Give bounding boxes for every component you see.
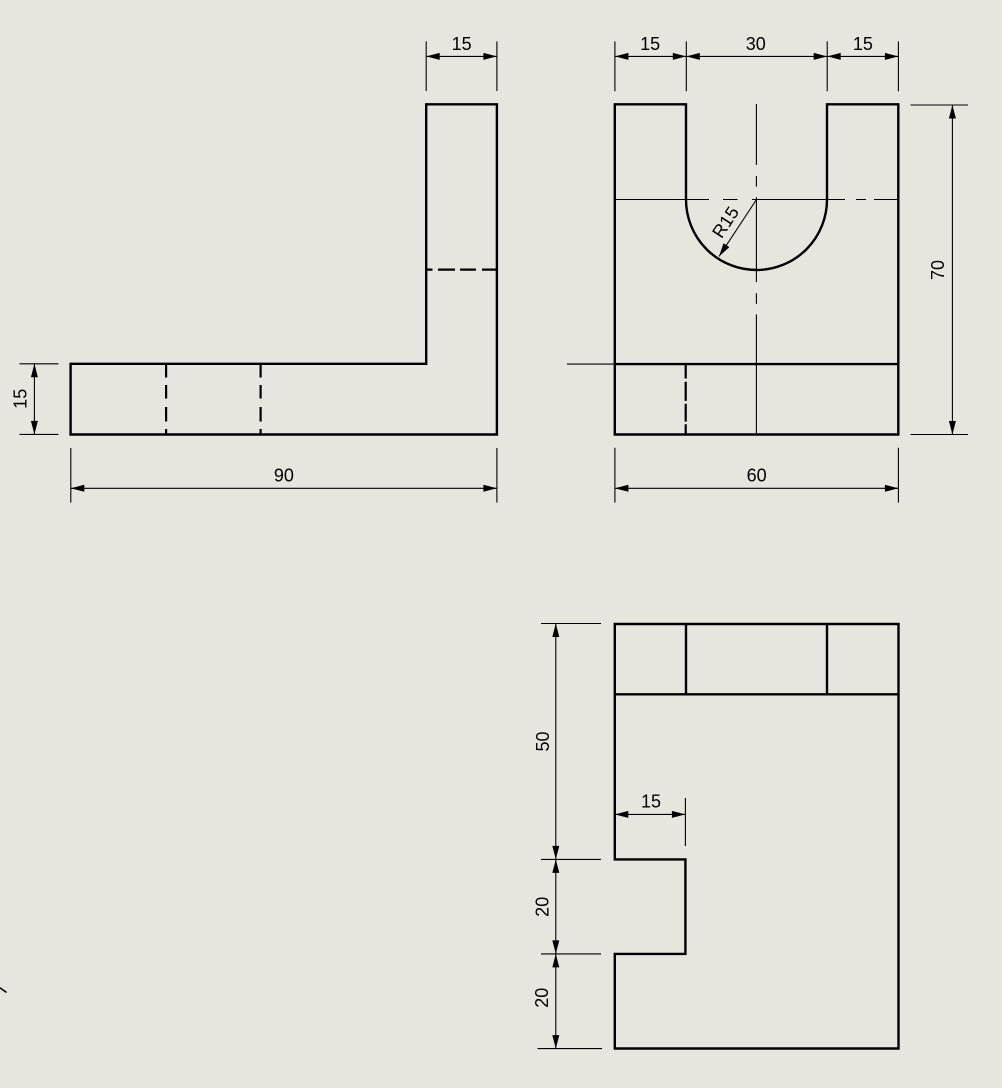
svg-text:60: 60 <box>747 465 767 485</box>
svg-text:15: 15 <box>640 34 660 54</box>
svg-text:20: 20 <box>533 897 553 917</box>
svg-text:15: 15 <box>452 34 472 54</box>
svg-text:15: 15 <box>853 34 873 54</box>
svg-text:15: 15 <box>641 791 661 811</box>
svg-text:15: 15 <box>11 389 31 409</box>
svg-text:90: 90 <box>274 465 294 485</box>
svg-text:20: 20 <box>532 988 552 1008</box>
svg-text:50: 50 <box>533 731 553 751</box>
svg-text:30: 30 <box>746 34 766 54</box>
svg-text:70: 70 <box>928 260 948 280</box>
